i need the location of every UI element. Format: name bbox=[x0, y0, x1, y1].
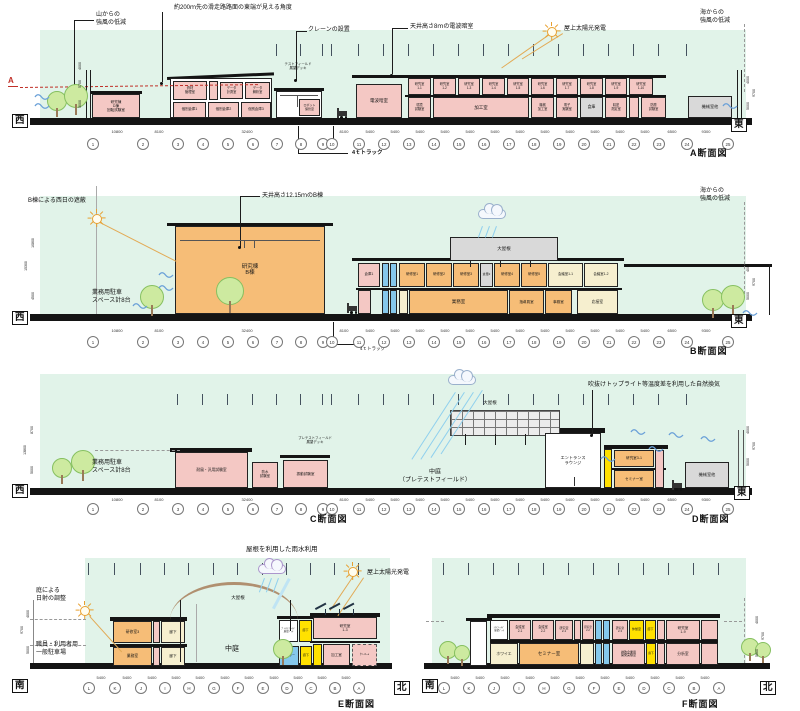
dim-text: 10800 bbox=[111, 328, 122, 333]
grid-bubble: 14 bbox=[428, 138, 440, 150]
compass-east-d: 東 bbox=[734, 486, 750, 500]
annotation-text: 5000 bbox=[746, 458, 750, 466]
grid-tick bbox=[188, 563, 189, 575]
grid-bubble: 14 bbox=[428, 503, 440, 515]
grid-bubble: H bbox=[538, 682, 550, 694]
grid-bubble: I bbox=[513, 682, 525, 694]
leader-line bbox=[298, 153, 348, 154]
grid-bubble: 21 bbox=[603, 336, 615, 348]
room-box: 研究室 1-1 bbox=[408, 78, 431, 95]
annotation-text: 5700 bbox=[78, 80, 82, 88]
annotation-text: 屋根を利用した雨水利用 bbox=[246, 546, 318, 554]
grid-bubble: 1 bbox=[87, 336, 99, 348]
grid-bubble: 2 bbox=[137, 503, 149, 515]
grid-tick bbox=[558, 44, 559, 56]
room-box bbox=[701, 620, 718, 640]
section-title-f: F断面図 bbox=[682, 697, 719, 710]
room-label: 研修室2 bbox=[433, 273, 445, 277]
room-box: 個別倉庫3 bbox=[241, 102, 271, 118]
grid-tick bbox=[468, 563, 469, 575]
room-label: 廊下 bbox=[648, 652, 654, 655]
annotation-text: 屋上太陽光発電 bbox=[367, 570, 409, 578]
grid-bubble: 22 bbox=[628, 138, 640, 150]
room-box: 機械 加工室 bbox=[531, 97, 554, 118]
room-label: 倉庫 bbox=[588, 105, 596, 109]
room-box: セミナー室 bbox=[614, 470, 654, 488]
grid-tick bbox=[164, 563, 165, 575]
leader-line-dashed bbox=[30, 619, 86, 620]
room-label: 業務室 bbox=[127, 654, 138, 658]
dim-text: 5400 bbox=[172, 675, 181, 680]
room-box bbox=[313, 644, 322, 666]
section-title-b: B断面図 bbox=[690, 344, 728, 357]
room-label: 個別倉庫1 bbox=[182, 108, 197, 112]
leader-line bbox=[737, 70, 738, 118]
leader-line bbox=[738, 430, 739, 488]
leader-line bbox=[741, 70, 742, 118]
dim-text: 5400 bbox=[566, 129, 575, 134]
grid-tick bbox=[518, 563, 519, 575]
grid-tick bbox=[643, 563, 644, 575]
leader-line bbox=[196, 604, 197, 662]
sun-icon bbox=[75, 601, 93, 619]
room-label: 加工室 bbox=[474, 105, 488, 110]
dim-text: 5400 bbox=[441, 497, 450, 502]
room-box: 防水 試験室 bbox=[252, 462, 278, 488]
grid-bubble: 16 bbox=[478, 336, 490, 348]
room-label: 振動試験室 bbox=[297, 472, 315, 476]
room-label: 会議室1-2 bbox=[593, 273, 608, 277]
annotation-text: 業務用駐車 スペース計8台 bbox=[92, 460, 131, 475]
grid-tick bbox=[633, 44, 634, 56]
grid-tick bbox=[608, 394, 609, 405]
dim-text: 5400 bbox=[366, 129, 375, 134]
room-box: 会議室1-2 bbox=[584, 263, 618, 287]
dim-text: 5400 bbox=[294, 675, 303, 680]
leader-line bbox=[296, 31, 307, 32]
grid-bubble: 19 bbox=[553, 503, 565, 515]
compass-south-e: 南 bbox=[12, 679, 28, 693]
room-box: 会議室 2-2 bbox=[532, 620, 554, 640]
room-box: 研修室4 bbox=[494, 263, 520, 287]
forklift-wheel bbox=[680, 488, 683, 491]
grid-tick bbox=[237, 563, 238, 575]
sun-ray bbox=[96, 223, 97, 227]
grid-tick bbox=[558, 394, 559, 405]
compass-east-a: 東 bbox=[731, 118, 747, 132]
marker-dot bbox=[238, 246, 241, 249]
room-box: 研修室1 bbox=[399, 263, 425, 287]
room-box: 分析室 bbox=[666, 643, 700, 665]
annotation-text: A bbox=[8, 76, 14, 86]
tree-trunk bbox=[712, 308, 714, 318]
grid-bubble: 17 bbox=[503, 336, 515, 348]
grid-bubble: C bbox=[663, 682, 675, 694]
room-label: 研究室 1-2 bbox=[440, 83, 450, 90]
annotation-text: 中庭 （プレテストフィールド） bbox=[399, 470, 471, 485]
room-box: 研究室 2-2 bbox=[582, 620, 594, 640]
grid-tick bbox=[593, 563, 594, 575]
dim-text: 9300 bbox=[702, 497, 711, 502]
grid-bubble: 4 bbox=[197, 503, 209, 515]
sun-core bbox=[348, 567, 358, 577]
tree-trunk bbox=[82, 470, 84, 481]
room-box: 業務室 bbox=[409, 290, 508, 314]
grid-bubble: L bbox=[83, 682, 95, 694]
room-box: 廊下 bbox=[300, 646, 312, 666]
annotation-text: 10800 bbox=[31, 238, 35, 248]
grid-bubble: 14 bbox=[428, 336, 440, 348]
room-label: 資材 管理室 bbox=[185, 87, 195, 95]
room-label: 事務室 bbox=[553, 300, 564, 304]
annotation-text: 4000 bbox=[746, 76, 750, 84]
dim-text: 5400 bbox=[651, 675, 660, 680]
dim-text: 5400 bbox=[123, 675, 132, 680]
dim-text: 5400 bbox=[441, 328, 450, 333]
annotation-text: 屋上太陽光発電 bbox=[564, 26, 606, 34]
grid-tick bbox=[140, 563, 141, 575]
leader-line bbox=[180, 240, 320, 241]
room-label: 研修室1 bbox=[406, 273, 418, 277]
grid-tick bbox=[433, 394, 434, 405]
annotation-text: 4000 bbox=[755, 616, 759, 624]
grid-tick bbox=[334, 563, 335, 575]
grid-tick bbox=[533, 394, 534, 405]
annotation-text: 5000 bbox=[755, 649, 759, 657]
annotation-text: 8700 bbox=[30, 426, 34, 434]
sun-ray bbox=[542, 30, 546, 31]
grid-tick bbox=[408, 44, 409, 56]
marker-dot bbox=[160, 82, 163, 85]
room-box: 加工室 bbox=[433, 97, 529, 118]
roof-slab bbox=[30, 118, 752, 125]
room-box: 研究室 1-5 bbox=[507, 78, 529, 95]
compass-west-b: 西 bbox=[12, 311, 28, 325]
room-box: ﾃｽﾄﾌｨｰﾙﾄﾞ 展望ﾃﾞｯｷ bbox=[490, 620, 508, 640]
room-box bbox=[629, 97, 639, 118]
room-box: 会議室1-1 bbox=[548, 263, 583, 287]
tree-trunk bbox=[151, 305, 153, 316]
wind-swirl-icon bbox=[34, 88, 50, 97]
dim-text: 5400 bbox=[366, 497, 375, 502]
room-label: ホワイエ bbox=[496, 652, 511, 656]
room-label: 研修室4 bbox=[501, 273, 513, 277]
room-label: 個別倉庫2 bbox=[216, 108, 231, 112]
room-box bbox=[390, 290, 397, 314]
leader-line bbox=[180, 600, 181, 662]
grid-bubble: 20 bbox=[578, 336, 590, 348]
room-label: 防塵 試験室 bbox=[649, 104, 659, 111]
room-label: 研修室5 bbox=[528, 273, 540, 277]
grid-bubble: 16 bbox=[478, 503, 490, 515]
leader-line bbox=[500, 261, 501, 267]
dim-text: 6500 bbox=[668, 129, 677, 134]
room-box bbox=[595, 620, 602, 640]
sun-ray bbox=[352, 562, 353, 566]
room-label: 研究室 2-1 bbox=[559, 627, 568, 634]
wind-swirl-icon bbox=[158, 279, 174, 288]
grid-bubble: B bbox=[329, 682, 341, 694]
dim-text: 5400 bbox=[451, 675, 460, 680]
grid-bubble: 15 bbox=[453, 336, 465, 348]
wind-swirl-icon bbox=[630, 423, 646, 432]
room-label: 電子 実験室 bbox=[562, 104, 572, 111]
marker-dot bbox=[590, 434, 593, 437]
grid-bubble: 3 bbox=[172, 336, 184, 348]
room-box bbox=[655, 450, 664, 488]
room-label: 個別倉庫3 bbox=[248, 108, 263, 112]
dim-text: 5400 bbox=[616, 129, 625, 134]
dim-text: 5400 bbox=[641, 497, 650, 502]
dim-text: 32400 bbox=[241, 497, 252, 502]
annotation-text: 4000 bbox=[746, 264, 750, 272]
grid-tick bbox=[213, 563, 214, 575]
grid-tick bbox=[668, 563, 669, 575]
grid-tick bbox=[227, 394, 228, 405]
grid-bubble: 23 bbox=[653, 138, 665, 150]
leader-line bbox=[495, 434, 496, 445]
grid-bubble: 23 bbox=[653, 503, 665, 515]
room-box: 研究室 1-10 bbox=[629, 78, 653, 95]
grid-bubble: 17 bbox=[503, 503, 515, 515]
grid-bubble: 19 bbox=[553, 336, 565, 348]
annotation-text: 吹抜けトップライト等温度差を利用した自然換気 bbox=[588, 382, 720, 390]
room-label: 廊下 bbox=[169, 654, 176, 658]
dim-text: 5400 bbox=[416, 129, 425, 134]
room-label: 休憩室 bbox=[632, 628, 641, 631]
dim-text: 5400 bbox=[342, 675, 351, 680]
room-label: 機械 加工室 bbox=[538, 104, 548, 111]
dim-text: 5400 bbox=[591, 129, 600, 134]
room-label: 防水 試験室 bbox=[260, 471, 270, 479]
room-box: 研究室 1-2 bbox=[433, 78, 456, 95]
leader-line-dashed bbox=[744, 202, 745, 294]
grid-tick bbox=[508, 44, 509, 56]
grid-bubble: 8 bbox=[295, 336, 307, 348]
grid-tick bbox=[658, 44, 659, 56]
dim-text: 5400 bbox=[491, 129, 500, 134]
wind-swirl-icon bbox=[722, 97, 738, 106]
grid-bubble: J bbox=[488, 682, 500, 694]
forklift-wheel bbox=[675, 488, 678, 491]
room-label: 研究室 1-7 bbox=[562, 83, 572, 90]
room-label: セミナー室 bbox=[538, 651, 561, 656]
sun-ray bbox=[96, 209, 97, 213]
sun-ray bbox=[343, 570, 347, 571]
wind-swirl-icon bbox=[34, 97, 50, 106]
room-box: エントランス ラウンジ bbox=[545, 433, 601, 488]
dim-text: 5400 bbox=[245, 675, 254, 680]
section-title-d: D断面図 bbox=[692, 512, 730, 525]
room-box: 応接室 bbox=[577, 290, 618, 314]
leader-line bbox=[280, 95, 318, 96]
room-label: ﾃｽﾄﾌｨｰﾙﾄﾞ 展望ﾃﾞｯｷ bbox=[494, 627, 505, 632]
grid-bubble: 7 bbox=[271, 138, 283, 150]
room-box: 精密 測定室 bbox=[605, 97, 627, 118]
sun-ray bbox=[84, 615, 85, 619]
room-box bbox=[358, 290, 371, 314]
room-box bbox=[399, 290, 408, 314]
room-box: 防塵 試験室 bbox=[641, 97, 666, 118]
grid-bubble: 23 bbox=[653, 336, 665, 348]
leader-line bbox=[296, 31, 297, 81]
wind-swirl-icon bbox=[132, 297, 148, 306]
room-label: 研究室 1-10 bbox=[636, 83, 646, 90]
grid-bubble: 15 bbox=[453, 503, 465, 515]
room-label: 研究室 1-8 bbox=[587, 83, 597, 90]
roof-slab bbox=[310, 613, 380, 617]
grid-bubble: 15 bbox=[453, 138, 465, 150]
grid-bubble: 10 bbox=[326, 138, 338, 150]
compass-west-c: 西 bbox=[12, 484, 28, 498]
room-box: 研究室 2-1 bbox=[555, 620, 573, 640]
room-label: 指導員室 bbox=[519, 300, 533, 304]
annotation-text: 4000 bbox=[78, 62, 82, 70]
grid-bubble: K bbox=[463, 682, 475, 694]
grid-bubble: B bbox=[688, 682, 700, 694]
annotation-text: 9700 bbox=[761, 632, 765, 640]
dim-text: 5400 bbox=[416, 497, 425, 502]
sun-ray bbox=[89, 609, 93, 610]
leader-line bbox=[74, 20, 94, 21]
room-box bbox=[390, 263, 397, 287]
tree-trunk bbox=[75, 104, 77, 115]
room-box: 個別倉庫1 bbox=[173, 102, 206, 118]
grid-tick bbox=[693, 563, 694, 575]
grid-bubble: 18 bbox=[528, 138, 540, 150]
annotation-text: 大屋根 bbox=[231, 595, 245, 601]
tree-trunk bbox=[447, 656, 449, 664]
dim-text: 5400 bbox=[566, 328, 575, 333]
grid-bubble: 16 bbox=[478, 138, 490, 150]
room-label: 大屋根 bbox=[497, 246, 511, 251]
annotation-text: 5000 bbox=[746, 292, 750, 300]
room-box: 機械室他 bbox=[685, 462, 729, 488]
room-box: 会議室 2-1 bbox=[509, 620, 531, 640]
grid-bubble: E bbox=[613, 682, 625, 694]
grid-tick bbox=[88, 563, 89, 575]
forklift-wheel bbox=[350, 311, 353, 314]
leader-line bbox=[290, 600, 291, 631]
dim-text: 5400 bbox=[196, 675, 205, 680]
room-label: 研究室 1-3 bbox=[340, 624, 351, 632]
grid-tick bbox=[483, 44, 484, 56]
sun-ray bbox=[551, 22, 552, 26]
grid-tick bbox=[686, 394, 687, 405]
sun-ray bbox=[345, 564, 349, 568]
room-box bbox=[595, 643, 602, 665]
annotation-text: 海からの 強風の低減 bbox=[700, 188, 730, 203]
room-label: 廊下 bbox=[647, 628, 653, 631]
tree-trunk bbox=[229, 301, 231, 314]
grid-bubble: 18 bbox=[528, 336, 540, 348]
leader-line-dashed bbox=[724, 621, 742, 622]
dim-text: 5400 bbox=[551, 675, 560, 680]
dim-text: 8100 bbox=[155, 328, 164, 333]
room-box: セミナー室 bbox=[519, 643, 579, 665]
dim-text: 5400 bbox=[491, 497, 500, 502]
grid-bubble: E bbox=[257, 682, 269, 694]
leader-line bbox=[254, 241, 255, 248]
grid-bubble: 5 bbox=[222, 503, 234, 515]
grid-bubble: D bbox=[638, 682, 650, 694]
sun-ray bbox=[352, 576, 353, 580]
grid-bubble: 7 bbox=[271, 503, 283, 515]
grid-tick bbox=[583, 394, 584, 405]
grid-bubble: I bbox=[159, 682, 171, 694]
room-label: データ 計測室 bbox=[227, 87, 237, 94]
roof-slab bbox=[30, 314, 752, 321]
compass-east-b: 東 bbox=[731, 314, 747, 328]
grid-bubble: 4 bbox=[197, 336, 209, 348]
grid-bubble: 5 bbox=[222, 138, 234, 150]
dim-text: 5400 bbox=[526, 675, 535, 680]
annotation-text: 庭による 日射の調整 bbox=[36, 588, 66, 603]
leader-line bbox=[240, 196, 260, 197]
room-label: 研修室3 bbox=[126, 630, 140, 634]
grid-bubble: F bbox=[232, 682, 244, 694]
solar-panel-leg bbox=[325, 609, 326, 615]
leader-line-dashed bbox=[95, 450, 180, 451]
grid-tick bbox=[114, 563, 115, 575]
roof-slab bbox=[280, 455, 330, 458]
dim-text: 5400 bbox=[466, 497, 475, 502]
grid-bubble: 10 bbox=[326, 336, 338, 348]
sun-ray bbox=[551, 36, 552, 40]
room-box: 電波暗室 bbox=[356, 84, 402, 118]
room-box: 環境 試験室 bbox=[408, 97, 431, 118]
sun-icon bbox=[87, 209, 105, 227]
dim-text: 5400 bbox=[270, 675, 279, 680]
leader-line bbox=[90, 70, 91, 118]
room-box: 研究室 1-6 bbox=[531, 78, 554, 95]
room-label: 研究室 1-9 bbox=[678, 626, 689, 634]
dim-text: 8100 bbox=[155, 129, 164, 134]
leader-line bbox=[244, 241, 245, 248]
grid-tick bbox=[583, 44, 584, 56]
room-box: 倉庫2 bbox=[480, 263, 493, 287]
sun-ray bbox=[89, 211, 93, 215]
room-box: 指導員室 bbox=[509, 290, 544, 314]
room-box: 研修室3 bbox=[113, 621, 152, 643]
sun-core bbox=[80, 606, 90, 616]
room-box bbox=[153, 647, 160, 666]
grid-bubble: 13 bbox=[403, 336, 415, 348]
sun-ray bbox=[75, 609, 79, 610]
room-box: 廊下 bbox=[645, 620, 656, 640]
grid-bubble: K bbox=[109, 682, 121, 694]
dim-text: 5400 bbox=[601, 675, 610, 680]
sun-core bbox=[547, 27, 557, 37]
room-label: 研究室 1-9 bbox=[611, 83, 621, 90]
room-box: 個別倉庫2 bbox=[208, 102, 239, 118]
wind-swirl-icon bbox=[668, 426, 684, 435]
sun-core bbox=[92, 214, 102, 224]
annotation-text: 15300 bbox=[24, 261, 28, 271]
room-box: 研修室3 bbox=[453, 263, 479, 287]
compass-west-a: 西 bbox=[12, 114, 28, 128]
wind-swirl-icon bbox=[600, 450, 616, 459]
sun-ray bbox=[556, 30, 560, 31]
sun-ray bbox=[84, 601, 85, 605]
annotation-text: 業務用駐車 スペース計8台 bbox=[92, 290, 131, 305]
room-label: 耐風・汎用試験室 bbox=[196, 468, 226, 472]
dim-text: 5400 bbox=[391, 497, 400, 502]
room-box bbox=[382, 290, 389, 314]
grid-tick bbox=[493, 563, 494, 575]
grid-bubble: J bbox=[135, 682, 147, 694]
grid-bubble: F bbox=[588, 682, 600, 694]
